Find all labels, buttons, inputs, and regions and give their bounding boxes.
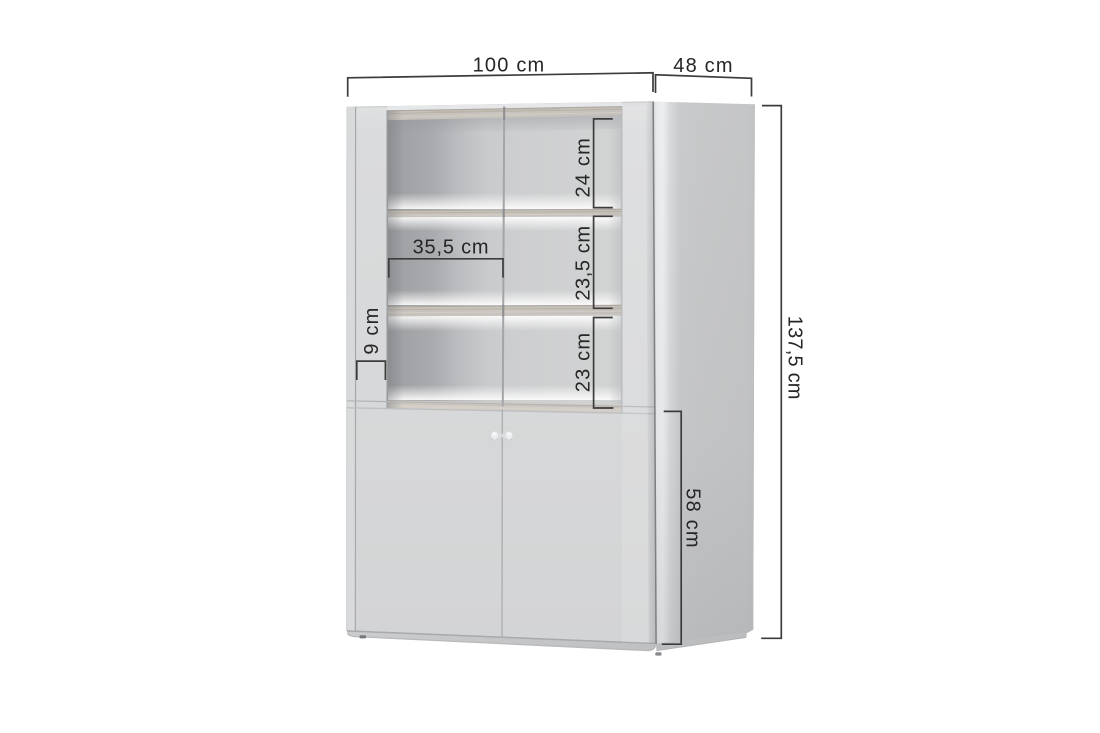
svg-text:23,5 cm: 23,5 cm	[572, 225, 594, 300]
svg-text:100 cm: 100 cm	[473, 55, 546, 77]
svg-text:24 cm: 24 cm	[572, 137, 594, 197]
svg-text:58 cm: 58 cm	[681, 488, 703, 548]
svg-text:23 cm: 23 cm	[572, 332, 594, 392]
svg-text:48 cm: 48 cm	[673, 55, 733, 77]
svg-text:9 cm: 9 cm	[361, 307, 383, 355]
svg-text:35,5 cm: 35,5 cm	[413, 237, 490, 259]
svg-text:137,5 cm: 137,5 cm	[784, 316, 806, 400]
